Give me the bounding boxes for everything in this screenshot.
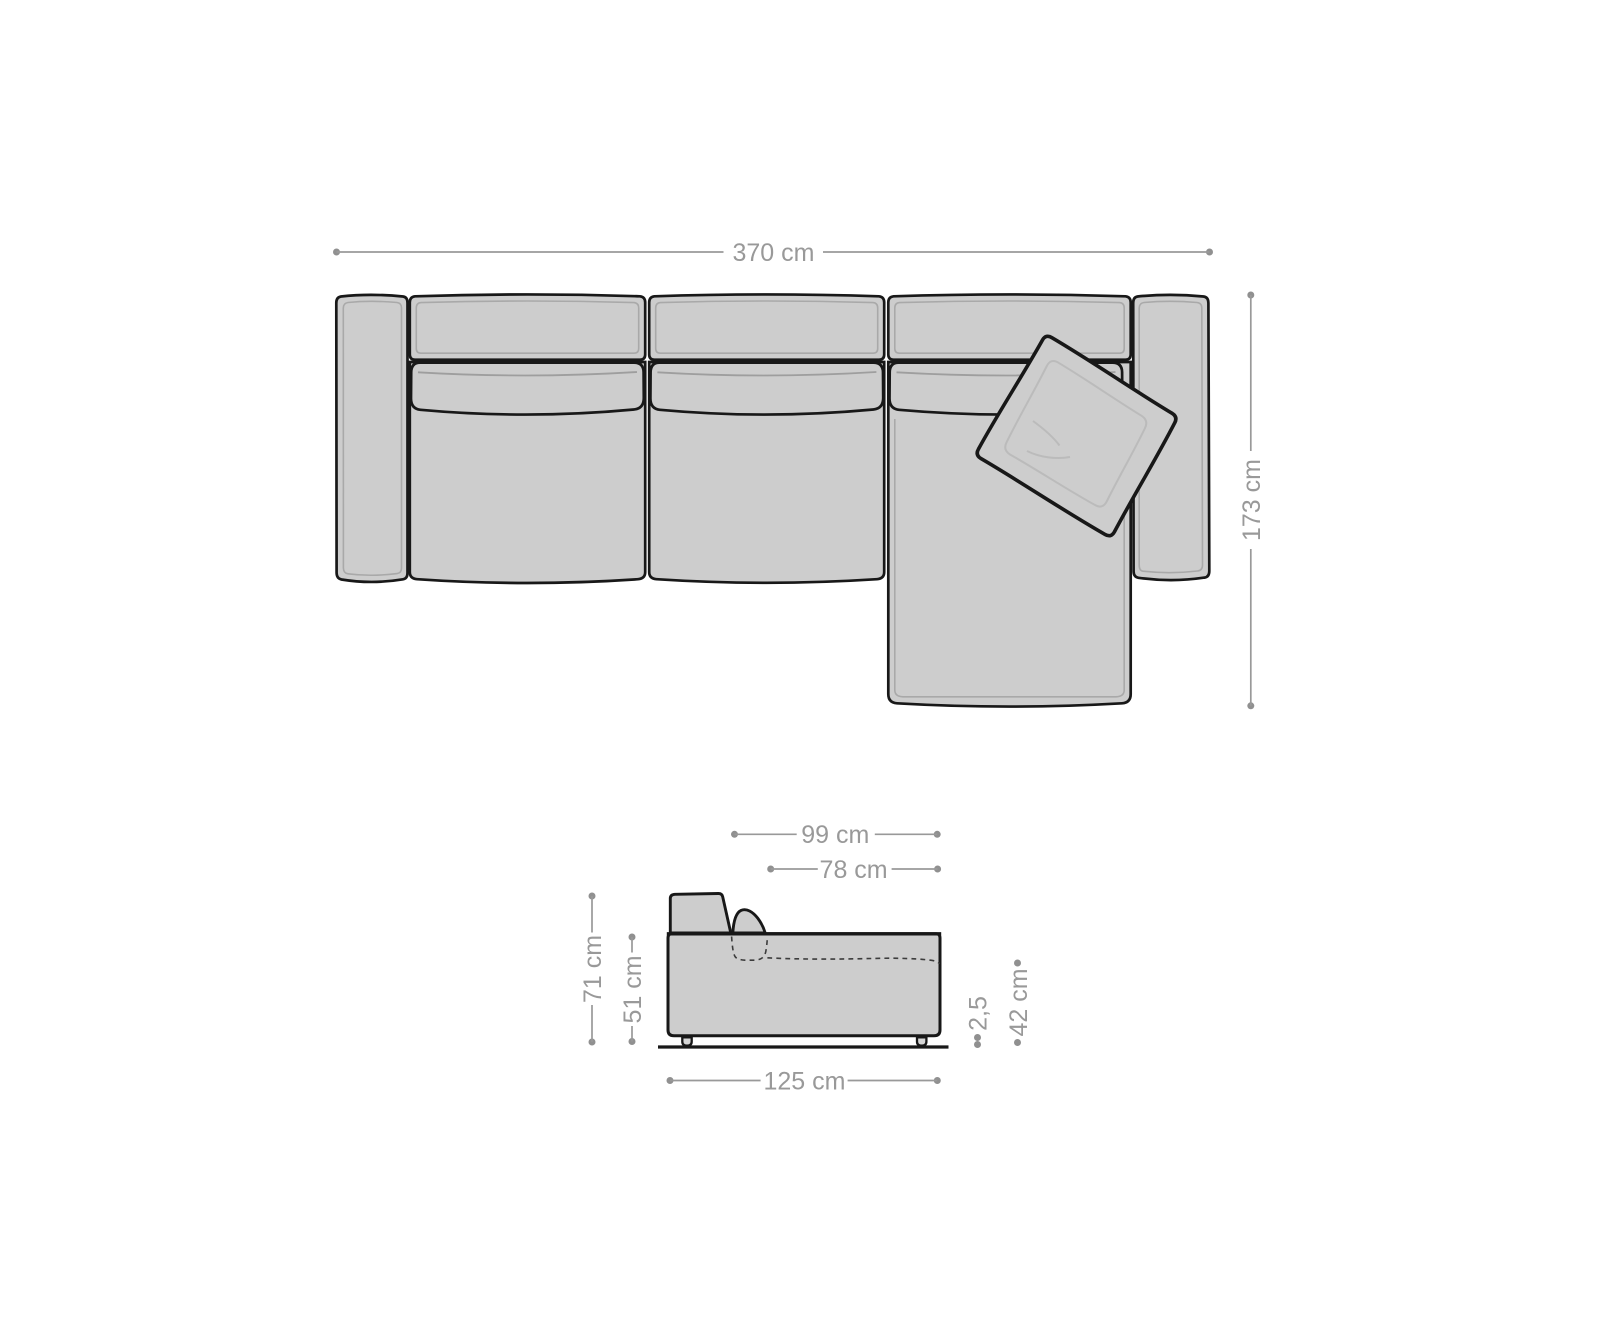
svg-text:51 cm: 51 cm <box>619 955 647 1023</box>
svg-text:125 cm: 125 cm <box>764 1067 846 1095</box>
svg-text:42 cm: 42 cm <box>1005 968 1033 1036</box>
svg-text:2,5: 2,5 <box>965 996 993 1031</box>
svg-text:173 cm: 173 cm <box>1238 459 1266 541</box>
svg-text:99 cm: 99 cm <box>801 821 869 849</box>
svg-text:370 cm: 370 cm <box>733 239 815 267</box>
svg-text:78 cm: 78 cm <box>820 856 888 884</box>
svg-text:71 cm: 71 cm <box>579 935 607 1003</box>
